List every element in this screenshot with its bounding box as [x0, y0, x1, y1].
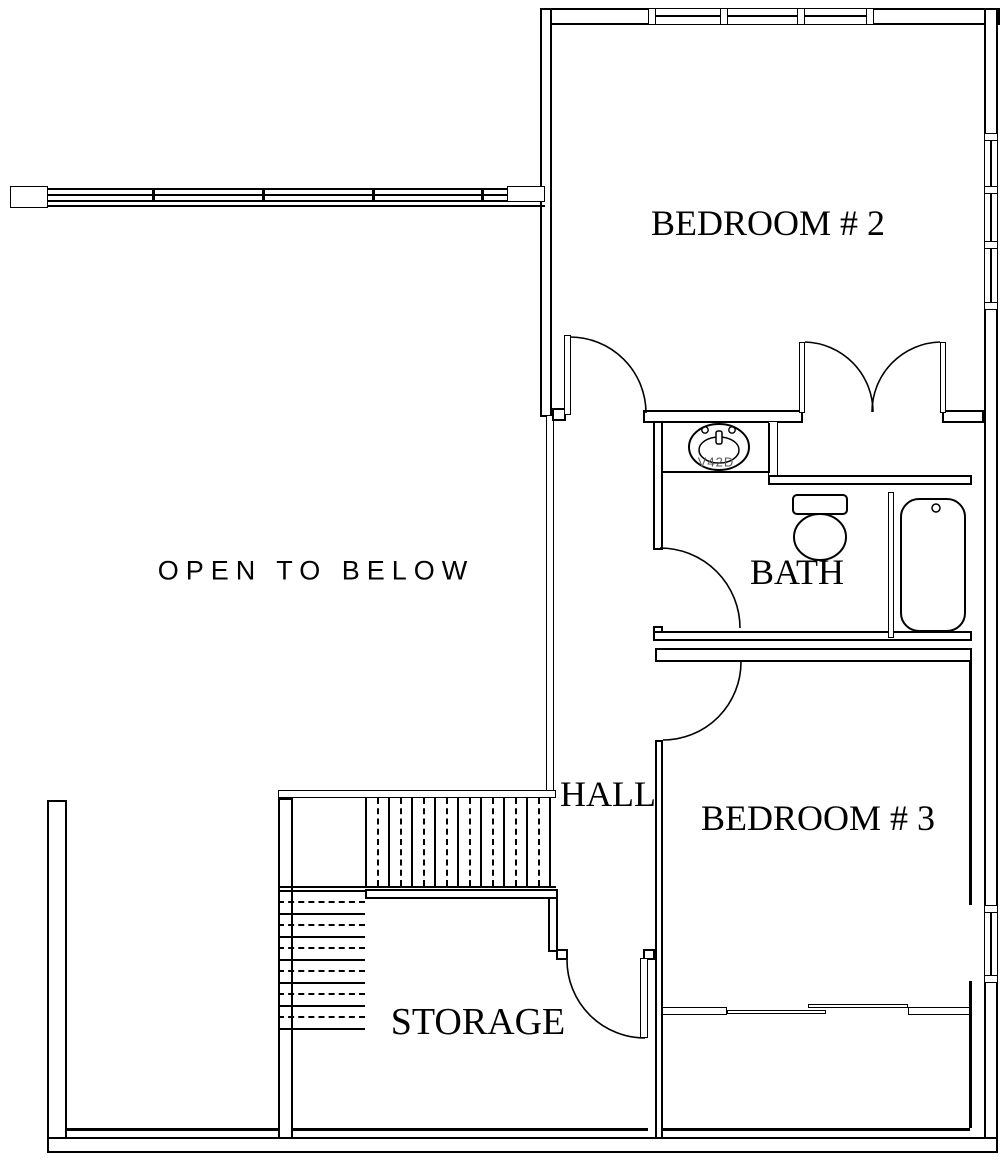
room-label-bedroom2: BEDROOM # 2 [651, 205, 885, 241]
room-label-storage: STORAGE [391, 1003, 566, 1041]
toilet [793, 495, 847, 560]
room-label-hall: HALL [560, 776, 656, 812]
bathtub [901, 499, 965, 631]
sink-model-label: V42D [698, 456, 735, 469]
door-swing-arc [660, 548, 740, 628]
open-to-below-note: OPEN TO BELOW [158, 558, 475, 585]
door-swing-arc [663, 662, 741, 740]
room-label-bedroom3: BEDROOM # 3 [701, 800, 935, 836]
room-label-bath: BATH [750, 554, 844, 590]
door-swing-arc [567, 960, 645, 1038]
door-swing-arc [570, 337, 646, 413]
door-swing-arc [805, 342, 873, 412]
door-swing-arc [872, 342, 940, 412]
floor-plan: BEDROOM # 2 BATH HALL BEDROOM # 3 STORAG… [0, 0, 1000, 1165]
fixtures-and-doors-layer [0, 0, 1000, 1165]
